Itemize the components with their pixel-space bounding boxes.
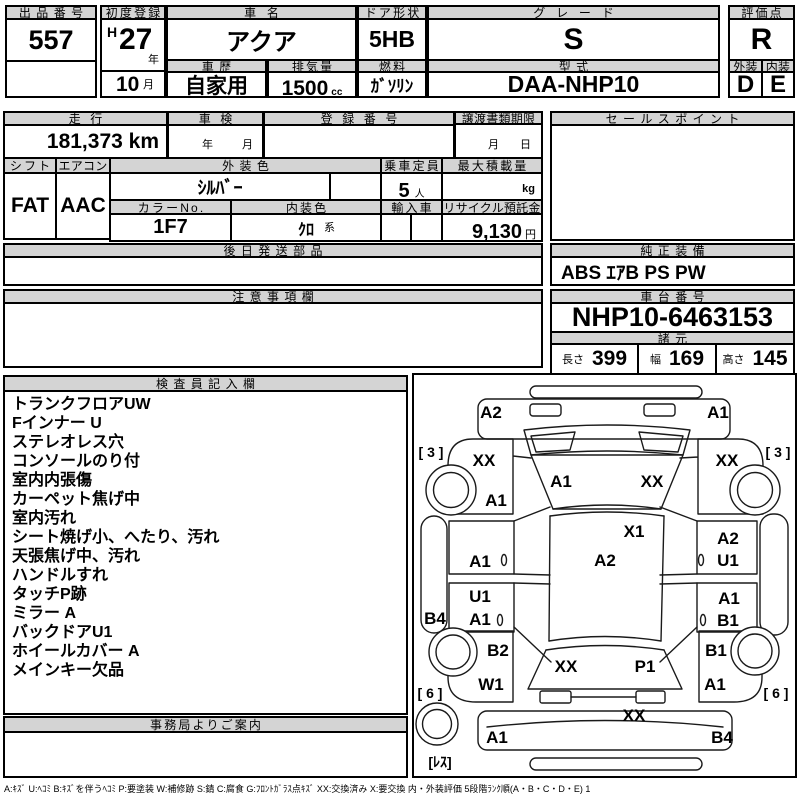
transfer-day-label: 日: [520, 136, 531, 152]
year-suffix: 年: [148, 51, 159, 67]
grade-value: S: [427, 18, 720, 61]
damage-mark: A1: [707, 403, 729, 423]
damage-mark: B4: [424, 609, 446, 629]
displacement-unit: cc: [331, 87, 342, 98]
equipment-value: ABS ｴｱB PS PW: [550, 256, 795, 286]
interior-grade: E: [761, 71, 795, 98]
roof-sides: [549, 516, 664, 641]
damage-mark: B1: [705, 641, 727, 661]
rear-panel: [478, 399, 730, 439]
interior-color-suffix: 系: [324, 219, 335, 235]
fuel-value: ｶﾞｿﾘﾝ: [357, 71, 427, 98]
inspection-note: ハンドルすれ: [12, 566, 399, 585]
rear-glass-top: [524, 425, 690, 455]
aircon-value: AAC: [55, 172, 111, 240]
recycle-fee: 9,130: [472, 221, 522, 244]
era-letter: H: [107, 24, 117, 40]
model-code-value: DAA-NHP10: [427, 71, 720, 98]
damage-mark: A1: [718, 589, 740, 609]
car-damage-diagram: A2 A1 [ 3 ] XX XX [ 3 ] A1 XX A1 X1 A2 A…: [412, 373, 797, 778]
inspection-note: トランクフロアUW: [12, 395, 399, 414]
spare-tire-mark: [ﾚｽ]: [428, 752, 451, 772]
exterior-color-value: ｼﾙﾊﾞｰ: [109, 172, 331, 201]
interior-color-value: ｸﾛ 系: [230, 213, 382, 242]
chassis-number: NHP10-6463153: [550, 302, 795, 333]
inspection-note: バックドアU1: [12, 623, 399, 642]
damage-mark: U1: [717, 551, 739, 571]
cowl: [546, 637, 664, 651]
recycle-value: 9,130 円: [441, 213, 543, 242]
width-label: 幅: [650, 351, 661, 367]
damage-mark: B1: [717, 611, 739, 631]
import-cell-b: [410, 213, 443, 242]
capacity-value: 5 人: [380, 172, 443, 201]
history-value: 自家用: [166, 71, 267, 98]
registration-month: 10: [116, 73, 139, 97]
inspection-note: ミラー A: [12, 604, 399, 623]
inspection-month-label: 月: [242, 136, 253, 152]
damage-mark: B4: [711, 728, 733, 748]
hood: [528, 650, 682, 689]
inspection-note: 室内汚れ: [12, 509, 399, 528]
width-value: 169: [669, 347, 704, 371]
inspection-note: 室内内張傷: [12, 471, 399, 490]
inspection-value: 年 月: [167, 124, 264, 159]
door-shape-value: 5HB: [357, 18, 427, 61]
door-handle: [701, 615, 706, 626]
height-value: 145: [752, 347, 787, 371]
max-load-value: kg: [441, 172, 543, 201]
damage-mark: XX: [641, 472, 664, 492]
lot-empty-cell: [5, 60, 97, 98]
max-load-unit: kg: [522, 183, 535, 195]
tread-depth-mark: [ 3 ]: [419, 444, 444, 460]
tread-depth-mark: [ 6 ]: [418, 685, 443, 701]
capacity-unit: 人: [415, 185, 425, 200]
damage-mark: A1: [486, 728, 508, 748]
damage-mark: U1: [469, 587, 491, 607]
dimension-length: 長さ 399: [550, 343, 639, 375]
sales-point-body: [550, 124, 795, 241]
registration-number-value: [263, 124, 455, 159]
headlight-right: [636, 691, 665, 703]
mileage-value: 181,373 km: [3, 124, 168, 159]
legend-line: A:ｷｽﾞ U:ﾍｺﾐ B:ｷｽﾞを伴うﾍｺﾐ P:要塗装 W:補修跡 S:錆 …: [4, 782, 796, 795]
interior-color: ｸﾛ: [298, 216, 314, 240]
damage-mark: A2: [717, 529, 739, 549]
shift-value: FAT: [3, 172, 57, 240]
length-label: 長さ: [562, 351, 584, 367]
damage-mark: A1: [704, 675, 726, 695]
inspection-year-label: 年: [202, 136, 213, 152]
inspection-note: メインキー欠品: [12, 661, 399, 680]
inspection-note: Fインナー U: [12, 414, 399, 433]
inspection-note: タッチP跡: [12, 585, 399, 604]
exterior-color-sub-cell: [329, 172, 382, 201]
damage-mark: XX: [716, 451, 739, 471]
tread-depth-mark: [ 6 ]: [764, 685, 789, 701]
length-value: 399: [592, 347, 627, 371]
later-parts-body: [3, 256, 543, 286]
door-handle: [699, 555, 704, 566]
inspection-note: ステレオレス穴: [12, 433, 399, 452]
car-name: アクア: [166, 18, 357, 61]
pillar-folds: [514, 507, 697, 662]
month-suffix: 月: [143, 76, 154, 92]
inspection-note: カーペット焦げ中: [12, 490, 399, 509]
door-handle: [502, 555, 507, 566]
transfer-docs-value: 月 日: [454, 123, 543, 159]
damage-mark: A2: [480, 403, 502, 423]
inspection-note: シート焼げ小、へたり、汚れ: [12, 528, 399, 547]
damage-mark: XX: [473, 451, 496, 471]
exterior-grade: D: [728, 71, 763, 98]
inspector-notes-body: トランクフロアUW Fインナー U ステレオレス穴 コンソールのり付 室内内張傷…: [3, 390, 408, 715]
damage-mark: XX: [555, 657, 578, 677]
dimension-width: 幅 169: [637, 343, 717, 375]
first-registration-year-cell: H 27 年: [100, 18, 166, 72]
damage-mark: W1: [478, 675, 504, 695]
damage-mark: P1: [635, 657, 656, 677]
door-handle: [498, 615, 503, 626]
height-label: 高さ: [722, 351, 744, 367]
transfer-month-label: 月: [488, 136, 499, 152]
damage-mark: XX: [623, 706, 646, 726]
dimension-height: 高さ 145: [715, 343, 795, 375]
color-no-value: 1F7: [109, 213, 232, 242]
damage-mark: A2: [594, 551, 616, 571]
damage-mark: X1: [624, 522, 645, 542]
inspection-note: ホイールカバー A: [12, 642, 399, 661]
rear-bumper-bar: [530, 386, 702, 398]
damage-mark: A1: [469, 610, 491, 630]
front-bumper-bar: [530, 758, 702, 770]
damage-mark: B2: [487, 641, 509, 661]
damage-mark: A1: [550, 472, 572, 492]
inspection-note: コンソールのり付: [12, 452, 399, 471]
office-info-body: [3, 731, 408, 778]
car-outline: [414, 375, 795, 776]
first-registration-month-cell: 10 月: [100, 70, 166, 98]
inspection-note: 天張焦げ中、汚れ: [12, 547, 399, 566]
damage-mark: A1: [485, 491, 507, 511]
recycle-unit: 円: [525, 226, 536, 242]
headlight-left: [540, 691, 571, 703]
displacement-value: 1500 cc: [267, 71, 357, 98]
front-bumper: [478, 711, 732, 750]
lot-number: 557: [5, 18, 97, 62]
damage-mark: A1: [469, 552, 491, 572]
right-sill: [760, 514, 788, 635]
notes-body: [3, 302, 543, 368]
auction-sheet: 出品番号 557 初度登録 H 27 年 10 月 車名 アクア 車歴 自家用 …: [0, 0, 800, 800]
score-value: R: [728, 18, 795, 61]
tread-depth-mark: [ 3 ]: [766, 444, 791, 460]
displacement-number: 1500: [282, 77, 329, 101]
import-cell-a: [380, 213, 412, 242]
